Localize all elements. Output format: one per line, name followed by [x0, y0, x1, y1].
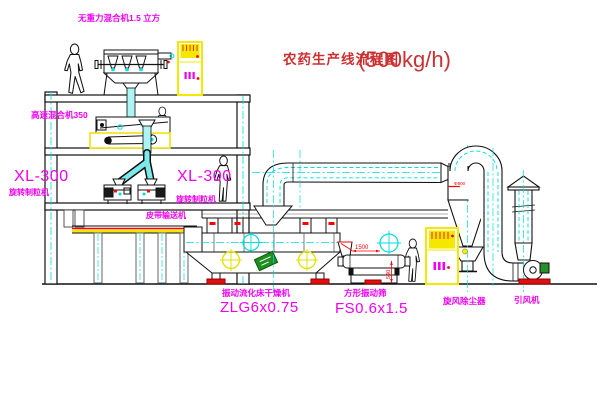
diagram-title: 农药生产线流程图 (500kg/h): [282, 47, 451, 72]
label-granulator-left-name: 旋转制粒机: [8, 187, 49, 197]
granulator-left: [104, 179, 131, 204]
label-granulator-left-model: XL-300: [14, 168, 69, 185]
person-top-floor: [65, 44, 84, 93]
y-chute: [120, 153, 151, 182]
label-fluid-bed-model: ZLG6x0.75: [220, 299, 299, 316]
label-gravity-mixer: 无重力混合机1.5 立方: [77, 13, 161, 23]
label-screen-name: 方形振动筛: [344, 288, 387, 298]
label-fan: 引风机: [514, 295, 540, 305]
label-cyclone: 旋风除尘器: [442, 296, 486, 306]
control-cabinet-top: [178, 42, 202, 95]
label-granulator-mid-model: XL-300: [177, 168, 232, 185]
diagram-canvas: 1500 540 Φ800 无重力混合机1.5 立方 高速混合机350 XL-3…: [0, 0, 600, 403]
label-high-speed-mixer: 高速混合机350: [31, 110, 88, 120]
flow-diagram: 1500 540 Φ800 无重力混合机1.5 立方 高速混合机350 XL-3…: [0, 0, 600, 403]
label-belt-conveyor: 皮带输送机: [145, 210, 186, 220]
label-fluid-bed-name: 振动流化床干燥机: [222, 288, 291, 298]
label-screen-model: FS0.6x1.5: [335, 300, 408, 317]
title-capacity: (500kg/h): [358, 47, 451, 72]
granulator-right: [138, 179, 165, 204]
mixer2-discharge-chute: [143, 126, 151, 153]
hood-funnel: [254, 206, 292, 225]
vibrating-screen: [338, 231, 410, 284]
fluid-bed-dryer: [184, 210, 448, 284]
cyclone-marking: Φ800: [454, 181, 466, 186]
screen-length-dim: 1500: [355, 245, 369, 251]
label-granulator-mid-name: 旋转制粒机: [175, 194, 216, 204]
mixer-discharge-chute: [127, 88, 135, 121]
high-speed-mixer: [90, 117, 170, 148]
screen-height-dim: 540: [386, 270, 392, 279]
control-cabinet-right: [426, 228, 458, 284]
